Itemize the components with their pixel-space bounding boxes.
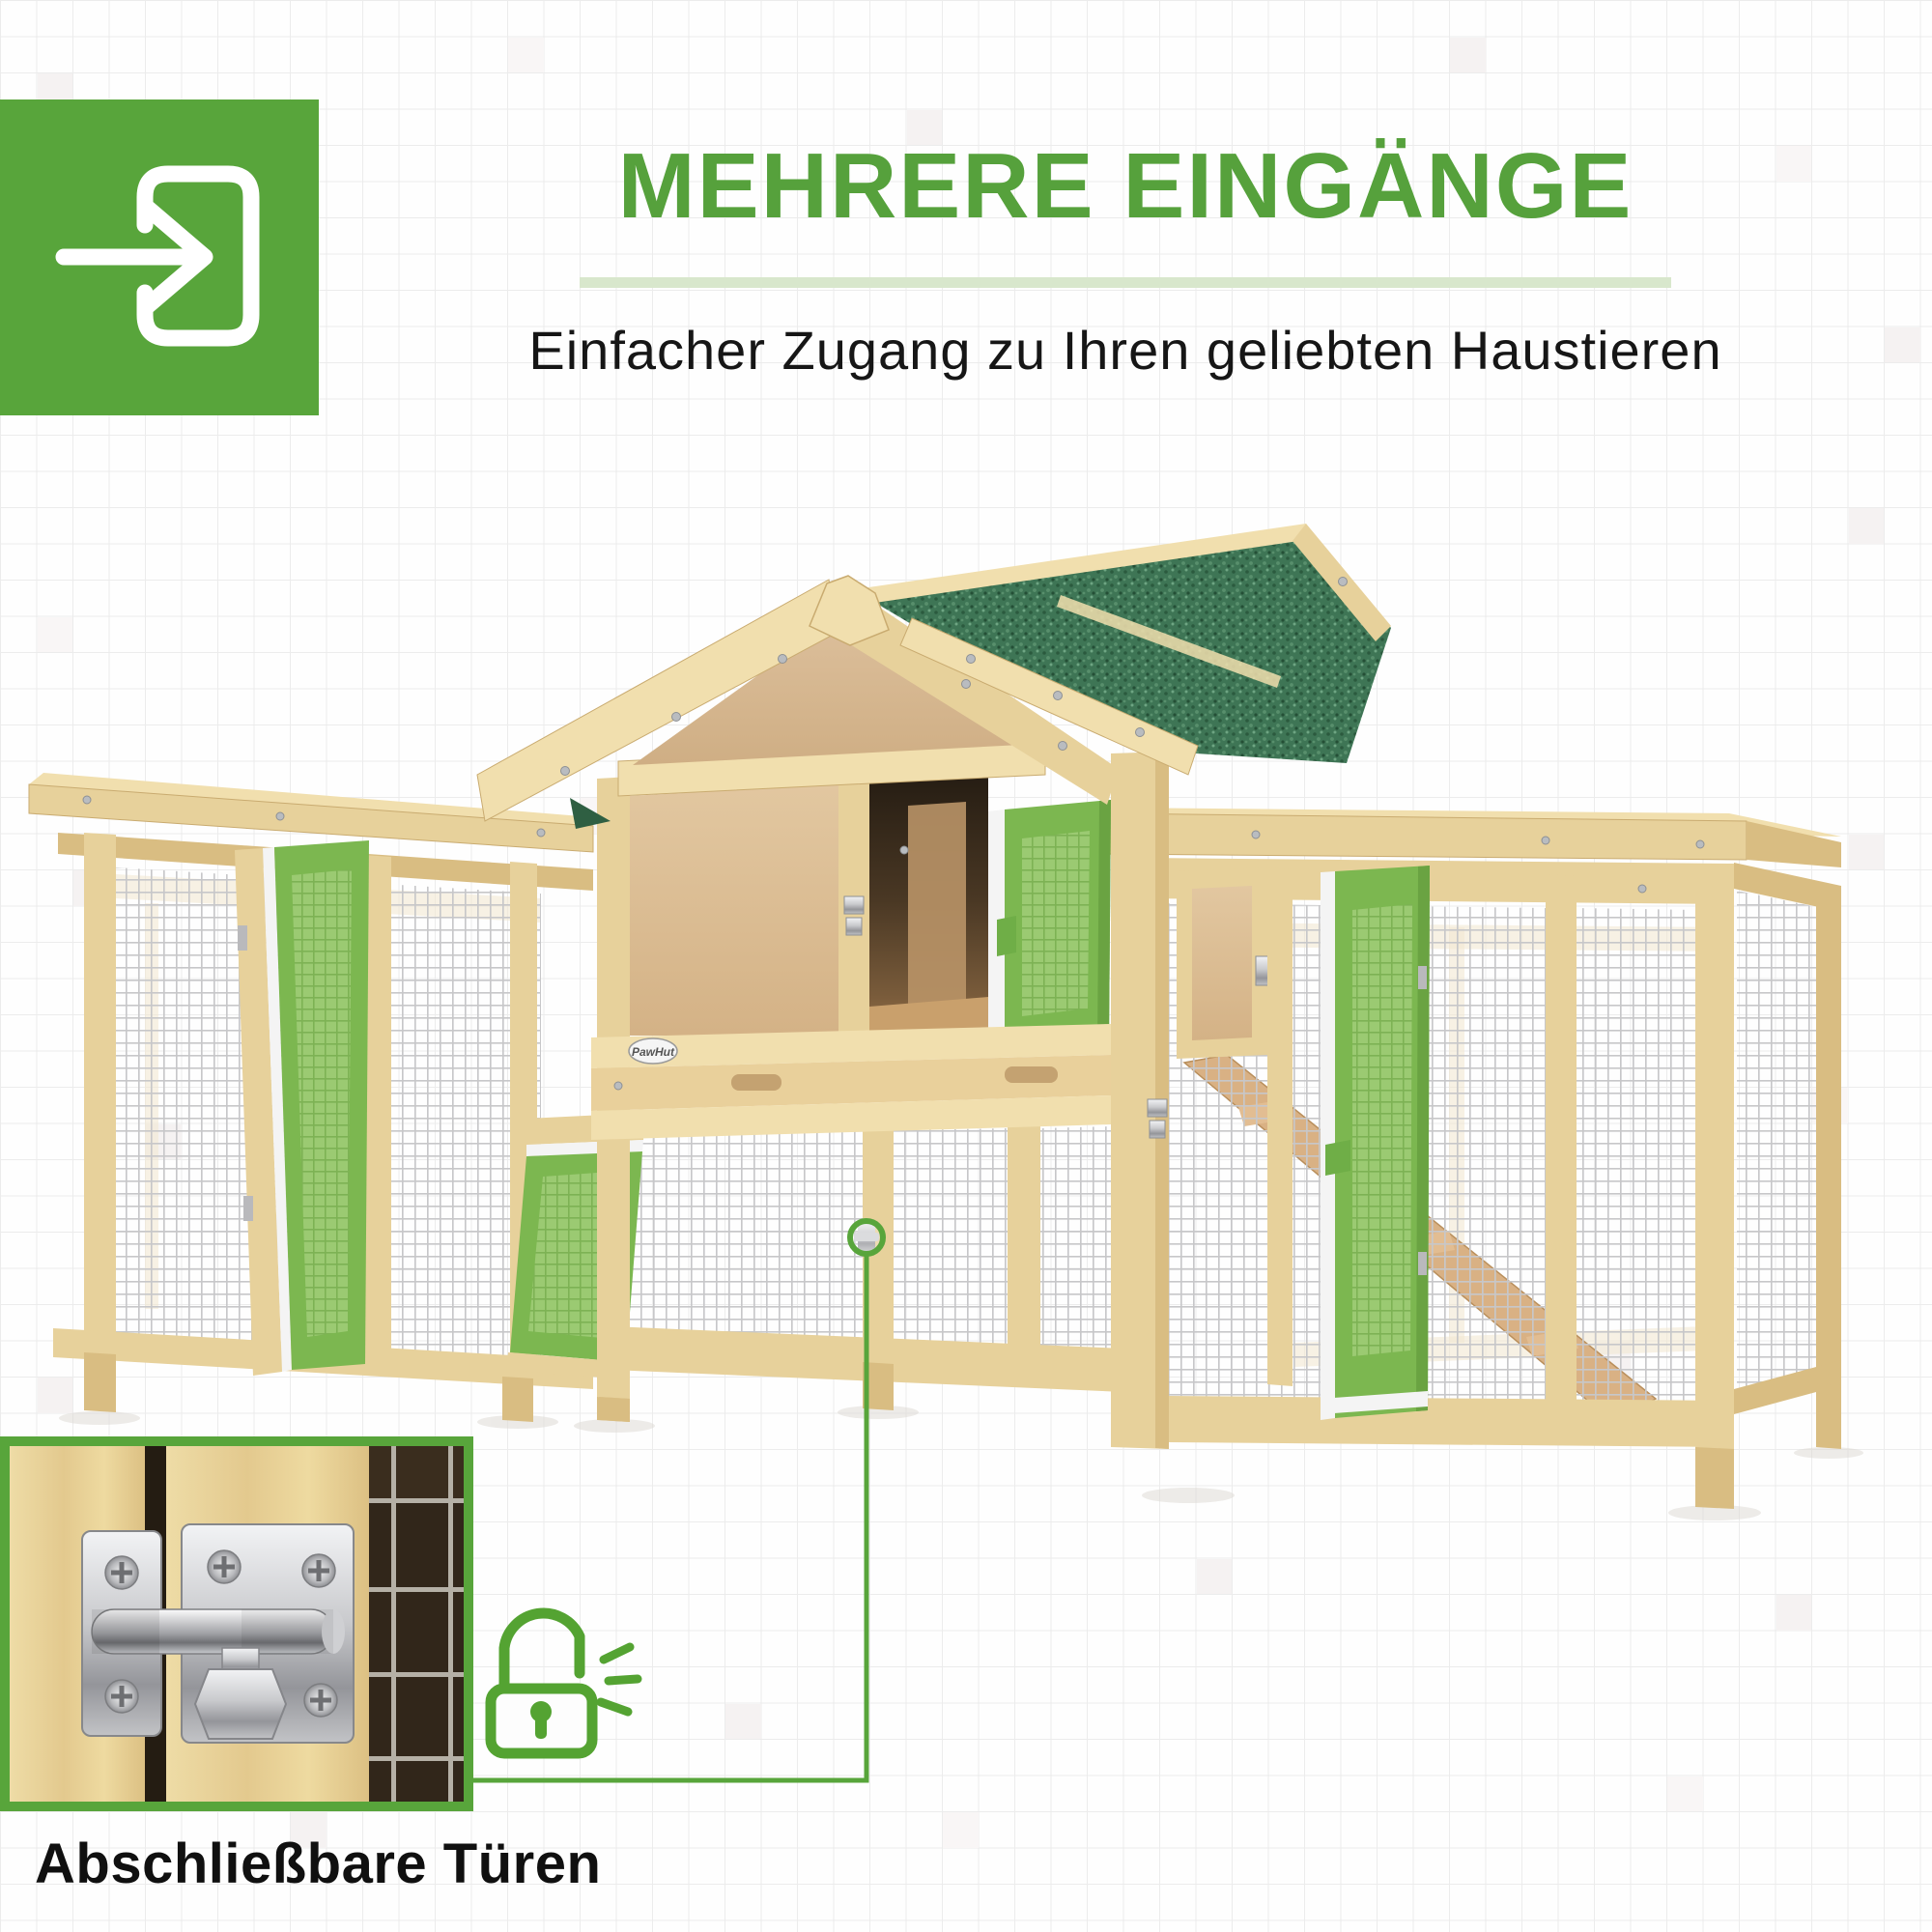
nest-box-door (1177, 867, 1269, 1059)
right-run-green-door (1321, 866, 1430, 1420)
brand-logo: PawHut (629, 1038, 677, 1064)
latch-inset (0, 1436, 473, 1811)
callout-caption: Abschließbare Türen (35, 1832, 601, 1896)
page: PawHut (0, 0, 1932, 1932)
page-subtitle: Einfacher Zugang zu Ihren geliebten Haus… (319, 319, 1932, 382)
right-run (1107, 808, 1841, 1509)
slide-bolt-latch (82, 1524, 354, 1743)
svg-text:PawHut: PawHut (632, 1045, 675, 1059)
house-green-door (988, 800, 1111, 1056)
enter-door-arrow-icon (0, 99, 319, 415)
open-padlock-icon (491, 1613, 638, 1753)
page-title: MEHRERE EINGÄNGE (319, 133, 1932, 240)
inset-tiles (369, 1446, 464, 1802)
entry-icon-block (0, 99, 319, 415)
title-underline (580, 277, 1671, 288)
left-run (29, 773, 593, 1422)
left-run-green-door (235, 840, 369, 1376)
